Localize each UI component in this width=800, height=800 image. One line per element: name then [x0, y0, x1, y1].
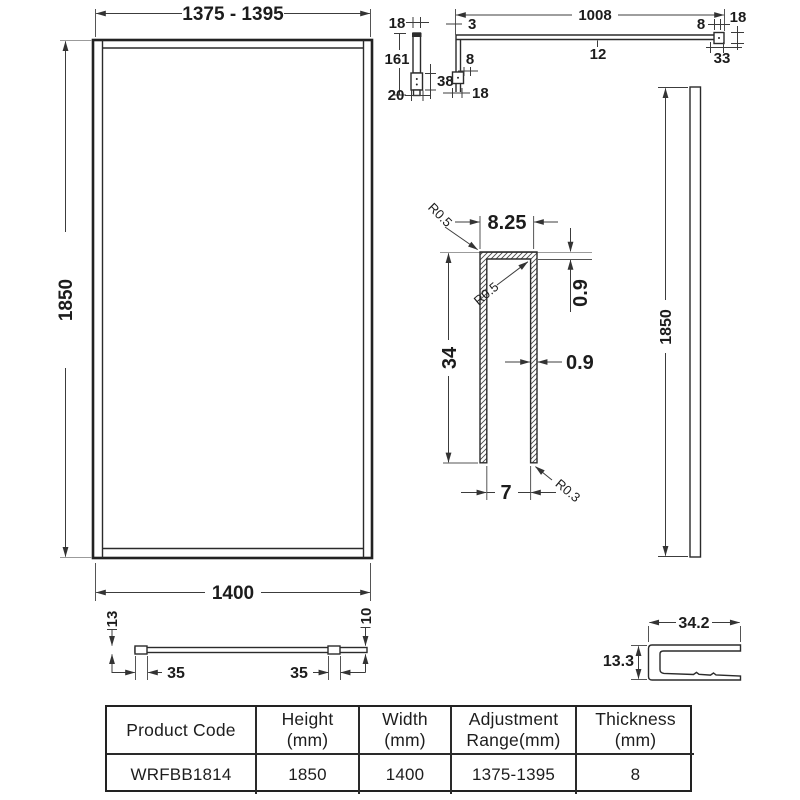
dim-profile-bottom-radius: R0.3	[553, 476, 584, 505]
plan-view: 13 10 35 35	[104, 608, 375, 682]
dim-profile-top-thickness: 0.9	[570, 279, 592, 307]
dim-bracket-width: 18	[389, 15, 406, 32]
header-line: Product Code	[126, 720, 235, 741]
header-line: (mm)	[287, 730, 329, 751]
dim-plan-left-thickness: 13	[104, 611, 121, 628]
dim-end-profile-width: 34.2	[678, 615, 709, 632]
dim-bracket-base: 20	[388, 87, 405, 104]
header-line: (mm)	[384, 730, 426, 751]
end-profile-shape	[649, 645, 741, 680]
bracket-detail-view: 18 161 20 38	[384, 15, 453, 104]
dim-arm-left-block: 8	[466, 51, 474, 68]
dim-arm-length: 1008	[578, 7, 611, 24]
dim-end-profile-height: 13.3	[603, 653, 634, 670]
header-line: Thickness	[595, 709, 676, 730]
spec-value-adjustment-range: 1375-1395	[452, 755, 577, 794]
header-line: Width	[382, 709, 428, 730]
spec-header-adjustment-range: Adjustment Range(mm)	[452, 707, 577, 755]
dim-bracket-block-height: 38	[437, 73, 454, 90]
dim-profile-wall-thickness: 0.9	[566, 352, 594, 374]
dim-arm-bar-thickness: 12	[590, 46, 607, 63]
dim-bracket-length: 161	[384, 51, 409, 68]
spec-header-width: Width (mm)	[360, 707, 452, 755]
side-view: 1850	[658, 87, 701, 557]
dim-front-height: 1850	[56, 279, 77, 321]
header-line: Range(mm)	[466, 730, 560, 751]
spec-value-height: 1850	[257, 755, 360, 794]
profile-section-view: 8.25 0.9 34 0.9 7 R0.5 R0.5 R0.3	[425, 200, 594, 505]
spec-header-product-code: Product Code	[107, 707, 257, 755]
header-line: (mm)	[615, 730, 657, 751]
drawing-canvas: 1375 - 1395 1850 1400 18 161 20	[0, 0, 800, 800]
dim-arm-right-end-width: 33	[714, 50, 731, 67]
spec-table: Product Code Height (mm) Width (mm) Adju…	[105, 705, 692, 792]
dim-arm-left-end: 18	[472, 85, 489, 102]
dim-profile-corner-radius: R0.5	[425, 200, 455, 230]
technical-drawing-sheet: 1375 - 1395 1850 1400 18 161 20	[0, 0, 800, 800]
dim-arm-right-end-height: 18	[730, 9, 747, 26]
end-profile-view: 34.2 13.3	[603, 615, 741, 680]
front-view: 1375 - 1395 1850 1400	[56, 4, 372, 604]
spec-value-product-code: WRFBB1814	[107, 755, 257, 794]
spec-header-height: Height (mm)	[257, 707, 360, 755]
header-line: Adjustment	[469, 709, 559, 730]
dim-profile-inner-width: 7	[500, 482, 511, 504]
dim-front-adjustment-range: 1375 - 1395	[182, 4, 284, 25]
dim-side-height: 1850	[658, 309, 675, 345]
spec-value-thickness: 8	[577, 755, 694, 794]
screen-outline	[93, 40, 372, 558]
dim-profile-top-width: 8.25	[488, 212, 527, 234]
dim-plan-right-clip-offset: 35	[290, 665, 308, 682]
side-profile-bar	[690, 87, 701, 557]
dim-arm-end-offset: 3	[468, 16, 476, 33]
dim-plan-right-thickness: 10	[358, 608, 375, 625]
dim-plan-left-clip-offset: 35	[167, 665, 185, 682]
dim-arm-right-block: 8	[697, 16, 705, 33]
header-line: Height	[282, 709, 334, 730]
spec-value-width: 1400	[360, 755, 452, 794]
dim-profile-height: 34	[439, 346, 461, 369]
dim-front-width: 1400	[212, 583, 254, 604]
spec-header-thickness: Thickness (mm)	[577, 707, 694, 755]
